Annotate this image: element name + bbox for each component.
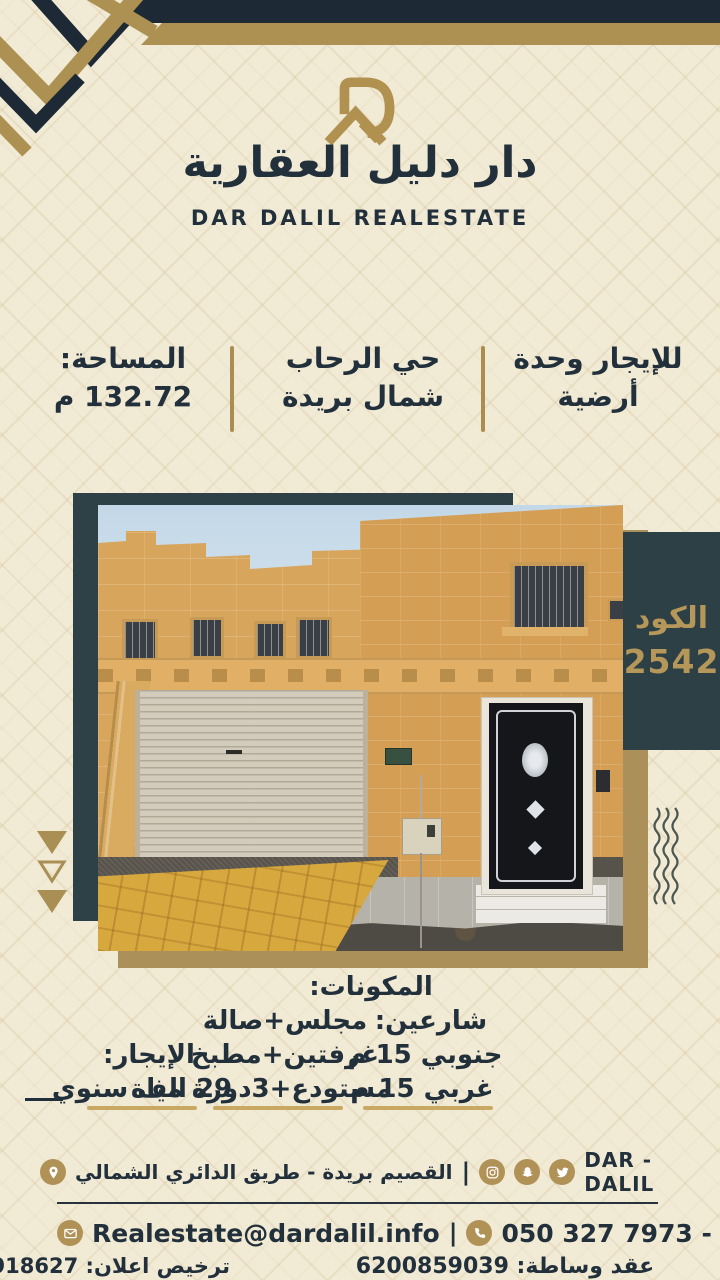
- code-badge-label: الكود: [635, 601, 708, 636]
- district-line2: شمال بريدة: [252, 378, 474, 416]
- photo-window-barred: [510, 562, 588, 634]
- code-badge-value: 2542: [624, 642, 720, 681]
- streets-title: شارعين:: [331, 1006, 531, 1036]
- footer-separator: |: [449, 1219, 458, 1247]
- photo-intercom: [596, 770, 610, 792]
- area-label: المساحة:: [12, 340, 234, 378]
- offer-line2: أرضية: [487, 378, 709, 416]
- photo-window-small: [608, 599, 623, 621]
- footer-separator: |: [462, 1158, 471, 1186]
- area-value: 132.72 م: [12, 378, 234, 416]
- photo-garage-shutter: [135, 690, 368, 883]
- photo-utility-meter: [402, 818, 442, 855]
- photo-door-medallion: [522, 743, 548, 777]
- footer-row-contact: Realestate@dardalil.info | 050 327 7973 …: [57, 1210, 720, 1256]
- streets-line: جنوبي 15 م: [325, 1040, 525, 1070]
- photo-door-ornament-border: [496, 710, 576, 882]
- code-badge: الكود 2542: [623, 532, 720, 750]
- streets-underline: [363, 1106, 493, 1110]
- photo-conduit: [420, 853, 422, 948]
- footer-row-brand: القصيم بريدة - طريق الدائري الشمالي | DA…: [40, 1150, 720, 1194]
- footer-address: القصيم بريدة - طريق الدائري الشمالي: [75, 1160, 453, 1184]
- photo-shutter-handle: [226, 750, 242, 754]
- photo-window: [254, 621, 286, 659]
- rent-value: 29 الف سنوي: [42, 1074, 242, 1104]
- footer-brand-name: DAR - DALIL: [584, 1148, 720, 1196]
- location-pin-icon: [40, 1159, 66, 1185]
- photo-dentils: [98, 669, 623, 682]
- photo-window: [122, 619, 158, 661]
- photo-entry-door: [489, 703, 583, 889]
- phone-icon: [466, 1220, 492, 1246]
- twitter-icon: [549, 1159, 575, 1185]
- district-line1: حي الرحاب: [252, 340, 474, 378]
- property-photo: [98, 505, 623, 951]
- wavy-lines-decor: [652, 806, 682, 906]
- rent-title: الإيجار:: [49, 1040, 249, 1070]
- area-column: المساحة: 132.72 م: [12, 340, 234, 416]
- email-icon: [57, 1220, 83, 1246]
- triangle-arrows-decor: [36, 830, 68, 916]
- footer-phones: 050 327 7973 - 055 517 1405: [501, 1219, 720, 1248]
- photo-meter-display: [427, 825, 435, 837]
- district-column: حي الرحاب شمال بريدة: [252, 340, 474, 416]
- offer-type-column: للإيجار وحدة أرضية: [487, 340, 709, 416]
- photo-window-ledge: [502, 627, 588, 636]
- instagram-icon: [479, 1159, 505, 1185]
- footer-email: Realestate@dardalil.info: [92, 1219, 440, 1248]
- streets-line: غربي 15 م: [322, 1074, 522, 1104]
- decor-dash: [25, 1098, 63, 1101]
- photo-street-number-plaque: [385, 748, 412, 765]
- footer-divider-line: [57, 1202, 658, 1204]
- brand-title-english: DAR DALIL REALESTATE: [0, 206, 720, 230]
- offer-line1: للإيجار وحدة: [487, 340, 709, 378]
- rent-underline: [87, 1106, 197, 1110]
- photo-window: [190, 617, 224, 659]
- brand-logo-icon: [323, 74, 397, 146]
- flyer-root: دار دليل العقارية DAR DALIL REALESTATE ل…: [0, 0, 720, 1280]
- photo-window: [296, 617, 332, 659]
- footer-ad-license: ترخيص اعلان: 7200918627: [8, 1254, 230, 1278]
- snapchat-icon: [514, 1159, 540, 1185]
- brand-title-arabic: دار دليل العقارية: [0, 138, 720, 188]
- photo-cornice-band: [98, 658, 623, 694]
- info-divider: [481, 346, 485, 432]
- footer-brokerage-contract: عقد وساطة: 6200859039: [347, 1254, 663, 1279]
- components-underline: [213, 1106, 343, 1110]
- photo-conduit: [420, 775, 422, 818]
- components-title: المكونات:: [271, 972, 471, 1002]
